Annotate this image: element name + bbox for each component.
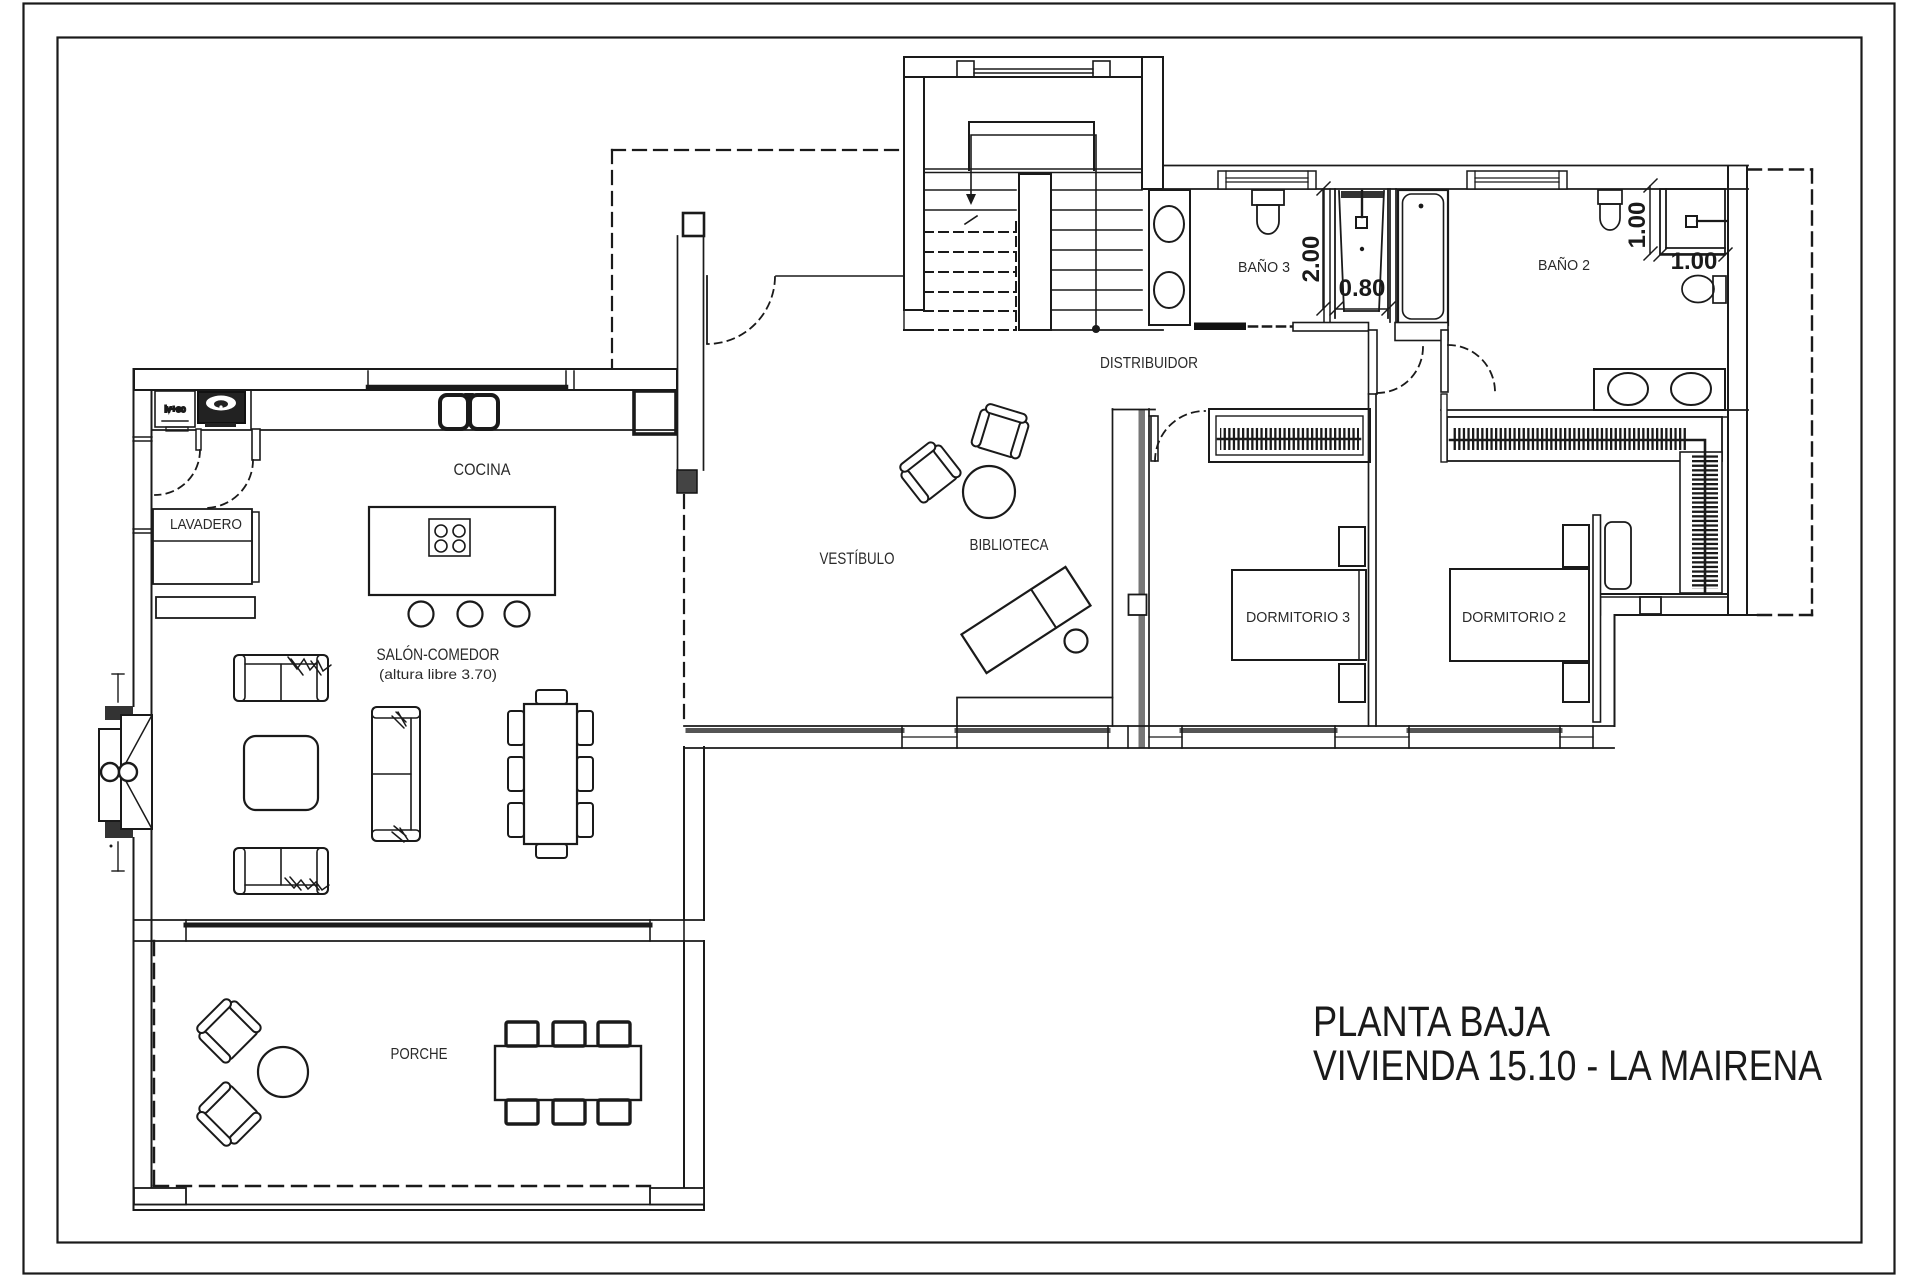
svg-text:LAVADERO: LAVADERO [170,516,242,533]
svg-text:VESTÍBULO: VESTÍBULO [820,549,895,568]
svg-text:(altura libre 3.70): (altura libre 3.70) [379,666,497,682]
svg-text:BIBLIOTECA: BIBLIOTECA [970,537,1050,554]
svg-text:DISTRIBUIDOR: DISTRIBUIDOR [1100,355,1198,372]
svg-text:SALÓN-COMEDOR: SALÓN-COMEDOR [377,645,500,664]
svg-text:1.00: 1.00 [1624,202,1651,249]
svg-text:lv+sc: lv+sc [165,404,186,414]
svg-text:COCINA: COCINA [454,461,511,479]
svg-text:2.00: 2.00 [1298,236,1325,283]
svg-text:BAÑO 2: BAÑO 2 [1538,257,1590,274]
svg-text:VIVIENDA 15.10 - LA MAIRENA: VIVIENDA 15.10 - LA MAIRENA [1313,1043,1823,1090]
svg-text:DORMITORIO 2: DORMITORIO 2 [1462,609,1566,626]
svg-text:0.80: 0.80 [1339,275,1386,302]
svg-text:BAÑO 3: BAÑO 3 [1238,259,1290,276]
svg-text:PLANTA BAJA: PLANTA BAJA [1313,999,1551,1046]
svg-text:PORCHE: PORCHE [391,1046,448,1063]
svg-text:DORMITORIO 3: DORMITORIO 3 [1246,609,1350,626]
svg-text:1.00: 1.00 [1671,248,1718,275]
